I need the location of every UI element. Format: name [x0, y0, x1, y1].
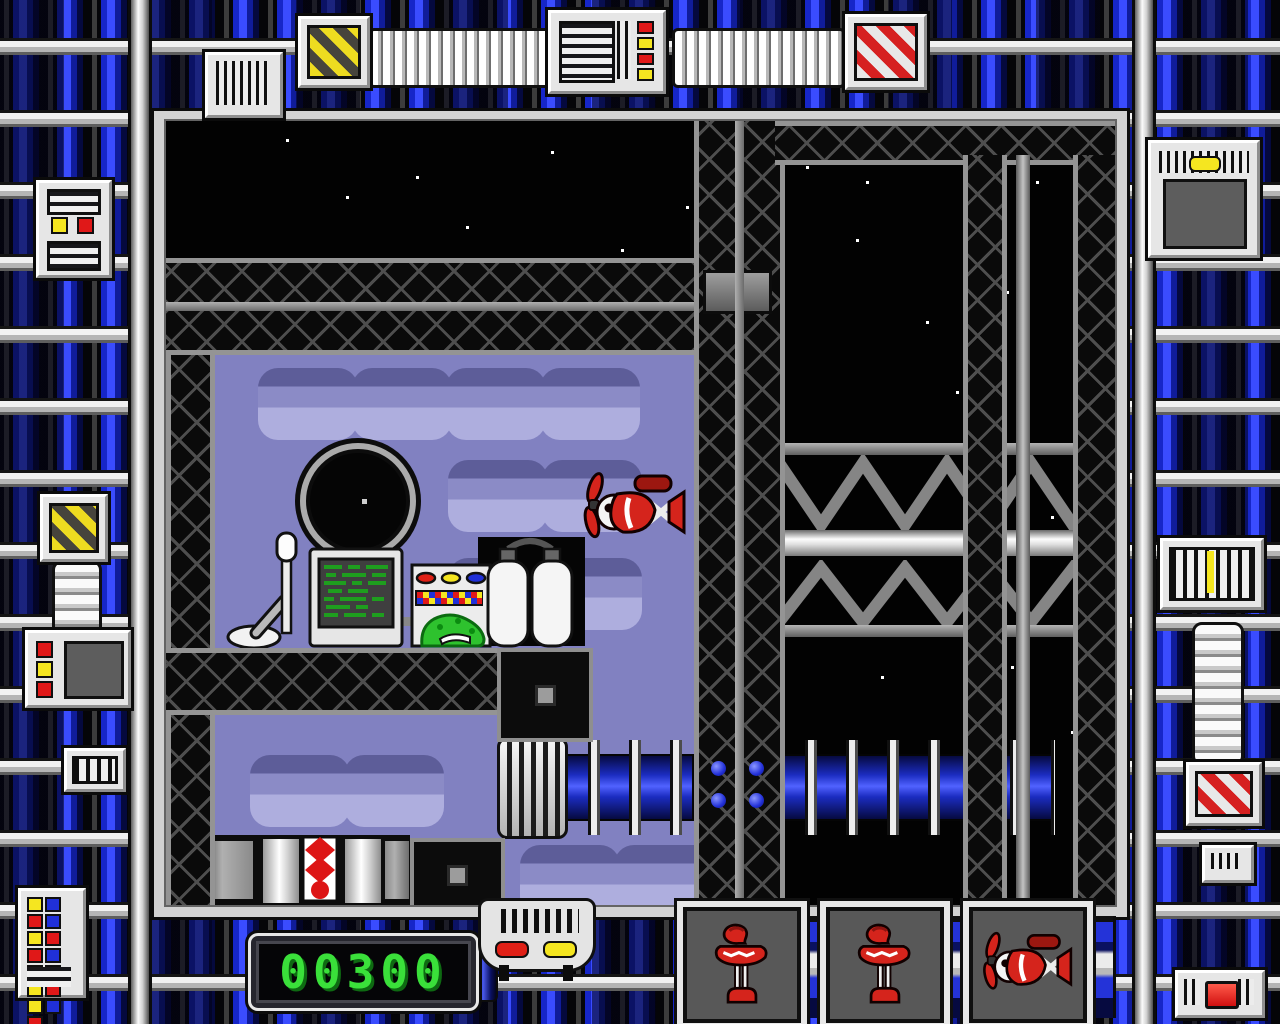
chain-wall-tile: [448, 460, 548, 532]
grid-button: [27, 931, 43, 946]
yellow-oval-button: [543, 941, 577, 958]
life-slot-heli-lamp: [826, 907, 944, 1023]
girder-block: [497, 648, 593, 742]
frame-pipe: [128, 0, 152, 1024]
red-oval-button: [495, 941, 529, 958]
score-value: 00300: [279, 949, 447, 995]
star: [466, 226, 469, 229]
hazard-stripes-panel: [298, 16, 370, 88]
star: [1036, 181, 1039, 184]
barcode-grille: [1160, 538, 1264, 610]
player-plane: [583, 470, 687, 550]
gray-rail: [1016, 155, 1030, 905]
button-grid-panel: [18, 888, 86, 998]
chain-wall-tile: [540, 368, 640, 440]
corrugated-tube: [368, 28, 554, 88]
girder-column: [963, 155, 1007, 905]
girder-column: [1073, 155, 1115, 905]
gas-tank: [532, 561, 572, 646]
truss-bridge: [779, 443, 1115, 637]
chain-wall-tile: [344, 755, 444, 827]
girder-beam-desk: [166, 648, 497, 715]
chain-wall-tile: [352, 368, 452, 440]
coil-pipe: [779, 740, 1055, 835]
girder-column-center: [694, 121, 785, 905]
heli-lamp-icon: [711, 920, 773, 1010]
star: [806, 166, 809, 169]
yellow-slit: [1207, 551, 1214, 593]
star: [866, 181, 869, 184]
girder-beam: [166, 258, 694, 355]
grid-button: [45, 897, 61, 912]
score-display: 00300: [248, 933, 479, 1011]
life-slot-heli-lamp: [683, 907, 801, 1023]
star: [1011, 666, 1014, 669]
vent-panel: [478, 898, 596, 972]
star: [416, 176, 419, 179]
grid-button: [27, 1016, 43, 1024]
vent-grate: [497, 737, 568, 839]
grid-button: [27, 897, 43, 912]
indicator-console: [25, 630, 131, 708]
insulator-stack: [1192, 622, 1244, 766]
star: [686, 206, 689, 209]
star: [551, 151, 554, 154]
grid-button: [27, 914, 43, 929]
heli-lamp-icon: [854, 920, 916, 1010]
grid-button: [27, 999, 43, 1014]
crt-monitor-panel: [1148, 140, 1260, 258]
gas-tank: [488, 561, 528, 646]
candy-stripes-panel: [1186, 762, 1262, 826]
computer-desk-scene: [226, 531, 586, 649]
chain-wall-tile: [258, 368, 358, 440]
game-screen: 00300: [0, 0, 1280, 1024]
grid-button: [45, 999, 61, 1014]
red-plane-icon: [982, 930, 1074, 1000]
striped-roller-machine: [207, 835, 410, 905]
star: [881, 676, 884, 679]
hazard-stripes-panel: [40, 494, 108, 562]
indicator-console: [36, 180, 112, 278]
girder-beam-top: [775, 121, 1115, 165]
barcode-grille: [64, 748, 126, 792]
star: [286, 139, 289, 142]
red-diamond-roller: [303, 837, 337, 901]
candy-stripes-panel: [845, 14, 927, 90]
grid-button: [27, 948, 43, 963]
star: [856, 239, 859, 242]
star: [956, 391, 959, 394]
star: [621, 249, 624, 252]
pipe-connector: [1084, 916, 1116, 1018]
star: [346, 196, 349, 199]
girder-column: [166, 258, 215, 905]
insulator-stack: [52, 560, 102, 640]
chain-wall-tile: [520, 845, 620, 905]
girder-block: [410, 838, 505, 905]
grid-button: [45, 931, 61, 946]
red-button-panel: [1175, 970, 1265, 1018]
life-slot-red-plane: [969, 907, 1087, 1023]
chain-wall-tile: [250, 755, 350, 827]
game-viewport[interactable]: [166, 121, 1115, 905]
slat-panel: [1202, 845, 1254, 883]
yellow-indicator-light: [1189, 156, 1221, 172]
star: [926, 321, 929, 324]
grid-button: [45, 914, 61, 929]
led-display-panel: [548, 10, 666, 94]
chain-wall-tile: [446, 368, 546, 440]
coil-pipe: [562, 740, 694, 835]
grid-button: [45, 948, 61, 963]
red-button: [1205, 981, 1239, 1009]
corrugated-tube: [672, 28, 846, 88]
slat-panel: [205, 52, 283, 118]
chain-wall-tile: [614, 845, 694, 905]
